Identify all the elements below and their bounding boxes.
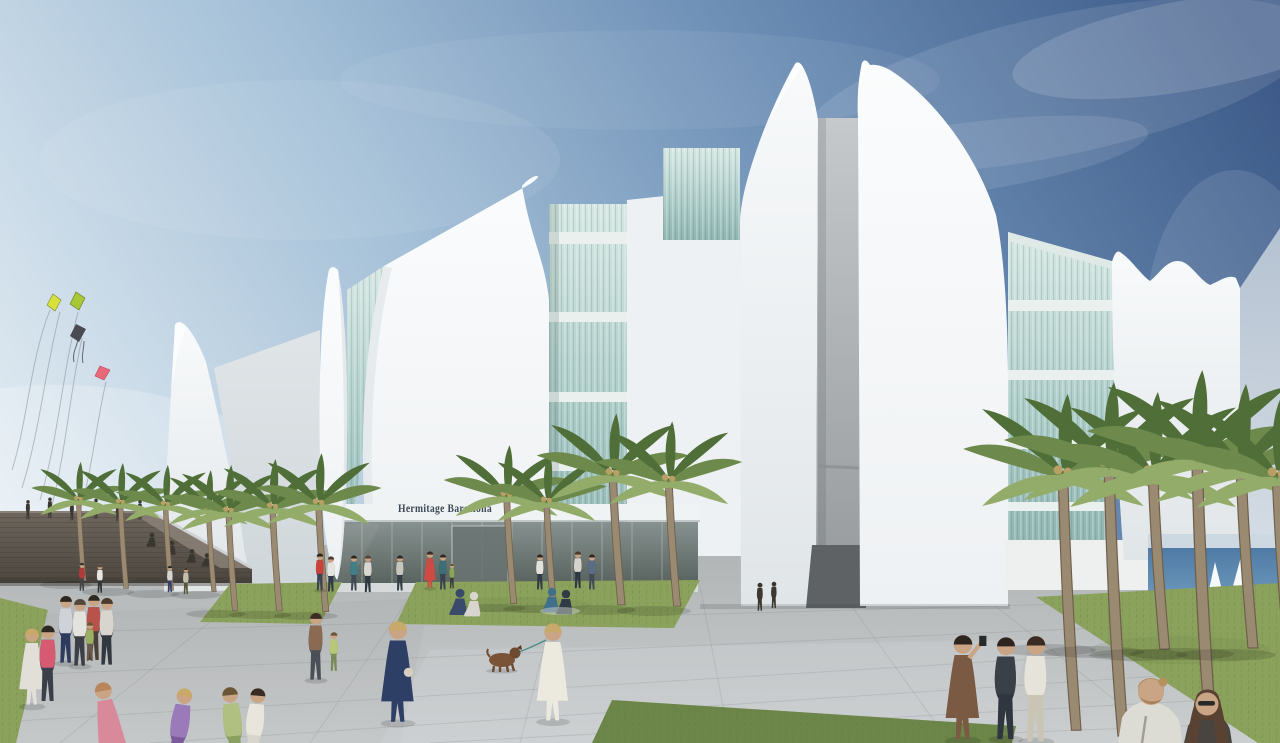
sunglasses-icon — [1198, 701, 1215, 706]
base-shadow — [700, 604, 1010, 609]
glass-high-strip — [663, 148, 740, 240]
entrance-door — [452, 526, 508, 583]
architectural-rendering: Hermitage Barcelona — [0, 0, 1280, 743]
